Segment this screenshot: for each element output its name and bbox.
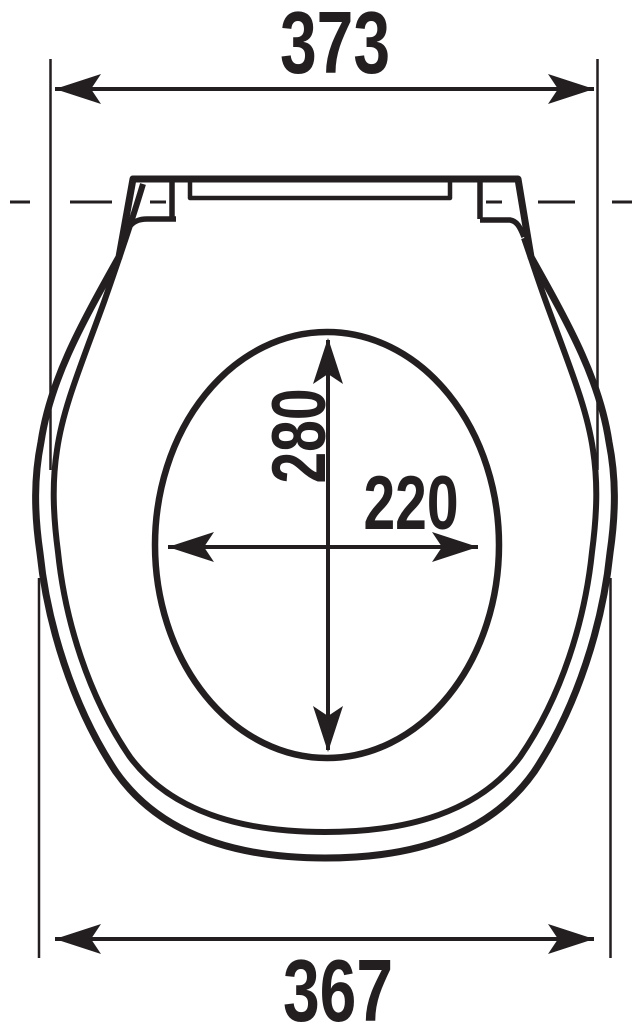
drawing-canvas: 373 367 280 220 [0,0,643,1036]
dimension-bottom-width: 367 [55,924,594,1036]
toilet-seat-dimension-diagram: 373 367 280 220 [0,0,643,1036]
lid-recess [190,181,450,198]
dimension-top-width: 373 [55,0,594,104]
label-hole-length: 280 [257,388,342,483]
label-hole-width: 220 [363,461,458,546]
extension-lines [39,59,611,958]
label-bottom-width: 367 [283,943,393,1036]
label-top-width: 373 [280,0,390,92]
